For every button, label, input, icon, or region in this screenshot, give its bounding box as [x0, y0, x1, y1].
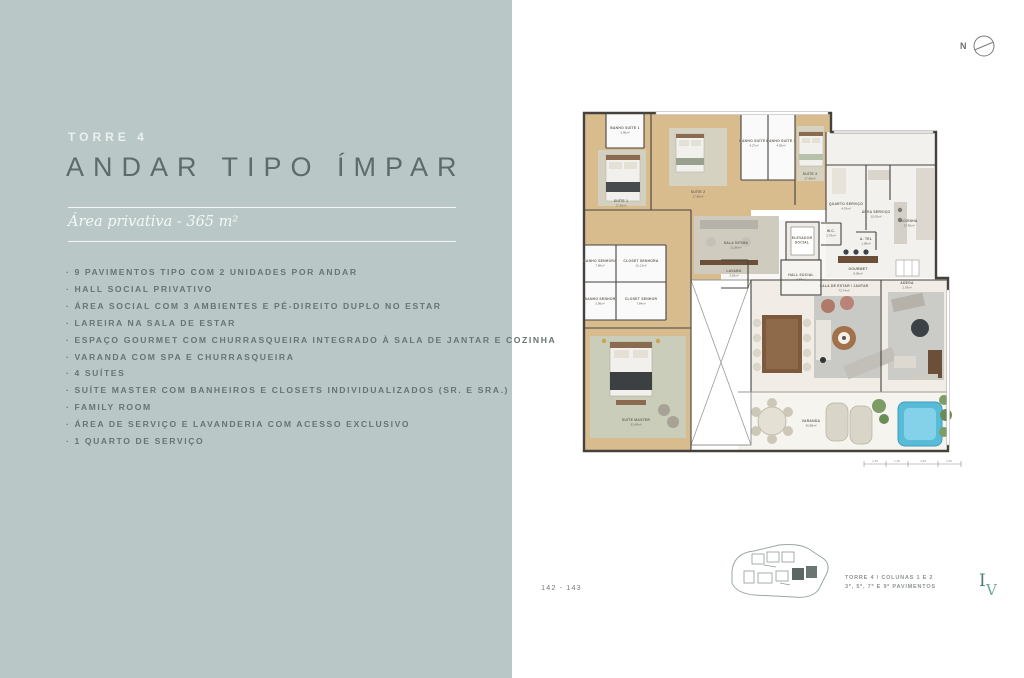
- floor-plan: SUÍTE 1 17,56m² BANHO SUÍTE 1 3,96m² SUÍ…: [576, 110, 968, 472]
- room-area: 1,58m²: [861, 242, 870, 246]
- page-title: ANDAR TIPO ÍMPAR: [66, 152, 466, 183]
- brochure-page: TORRE 4 ANDAR TIPO ÍMPAR Área privativa …: [0, 0, 1024, 678]
- scale-bar: 1,45 1,45 4,45 3,45: [864, 459, 961, 467]
- divider-line: [68, 207, 456, 208]
- room-label: HALL SOCIAL: [788, 273, 813, 277]
- feature-item: LAREIRA NA SALA DE ESTAR: [66, 315, 556, 332]
- feature-item: 9 PAVIMENTOS TIPO COM 2 UNIDADES POR AND…: [66, 264, 556, 281]
- room-area: 4,28m²: [776, 144, 785, 148]
- room-label: QUARTO SERVIÇO: [829, 202, 863, 206]
- private-area-label: Área privativa - 365 m²: [68, 214, 238, 230]
- feature-item: 1 QUARTO DE SERVIÇO: [66, 433, 556, 450]
- feature-item: ÁREA SOCIAL COM 3 AMBIENTES E PÉ-DIREITO…: [66, 298, 556, 315]
- room-label: SALA DE ESTAR / JANTAR: [820, 284, 869, 288]
- room-label: ELEVADOR: [792, 236, 813, 240]
- keyplan-caption-line1: TORRE 4 / COLUNAS 1 E 2: [845, 574, 936, 583]
- keyplan-caption: TORRE 4 / COLUNAS 1 E 2 3º, 5º, 7º E 9º …: [845, 574, 936, 592]
- room-label: SUÍTE MASTER: [622, 417, 651, 422]
- double-height-void: [691, 280, 751, 445]
- scale-value: 1,45: [872, 459, 878, 463]
- monogram-letter-v: V: [986, 581, 997, 599]
- room-label: A. TEL: [860, 237, 872, 241]
- room-label: BANHO SENHORA: [583, 259, 617, 263]
- room-label: SALA ÍNTIMA: [724, 240, 749, 245]
- room-area: 17,88m²: [804, 177, 815, 181]
- elevator-shafts: [781, 222, 821, 295]
- feature-item: VARANDA COM SPA E CHURRASQUEIRA: [66, 349, 556, 366]
- room-area: 7,86m²: [595, 264, 604, 268]
- room-label: ÁREA SERVIÇO: [862, 209, 891, 214]
- room-label: GOURMET: [848, 267, 868, 271]
- north-label: N: [960, 41, 968, 51]
- room-area: 3,55m²: [729, 274, 738, 278]
- north-compass: N: [960, 33, 997, 59]
- scale-value: 3,45: [946, 459, 952, 463]
- room-area: 3,96m²: [620, 131, 629, 135]
- room-area: 17,56m²: [615, 204, 626, 208]
- room-label: SUÍTE 1: [614, 198, 629, 203]
- room-label: CLOSET SENHORA: [623, 259, 658, 263]
- room-area: 4,27m²: [749, 144, 758, 148]
- room-area: 17,36m²: [903, 224, 914, 228]
- page-number: 142 - 143: [541, 583, 582, 592]
- room-area: 10,13m²: [635, 264, 646, 268]
- feature-item: HALL SOCIAL PRIVATIVO: [66, 281, 556, 298]
- room-label: BANHO SUÍTE 3: [766, 138, 795, 143]
- feature-item: SUÍTE MASTER COM BANHEIROS E CLOSETS IND…: [66, 382, 556, 399]
- room-label: VARANDA: [802, 419, 821, 423]
- room-area: 6,88m²: [796, 278, 805, 282]
- monogram-letter-i: I: [979, 571, 986, 591]
- feature-list: 9 PAVIMENTOS TIPO COM 2 UNIDADES POR AND…: [66, 264, 556, 450]
- keyplan-caption-line2: 3º, 5º, 7º E 9º PAVIMENTOS: [845, 583, 936, 592]
- feature-item: 4 SUÍTES: [66, 365, 556, 382]
- divider-line: [68, 241, 456, 242]
- room-label: BANHO SENHOR: [585, 297, 616, 301]
- feature-item: ÁREA DE SERVIÇO E LAVANDERIA COM ACESSO …: [66, 416, 556, 433]
- tower-label: TORRE 4: [68, 130, 148, 144]
- feature-item: ESPAÇO GOURMET COM CHURRASQUEIRA INTEGRA…: [66, 332, 556, 349]
- room-area: 36,88m²: [805, 424, 816, 428]
- room-label: W.C.: [827, 229, 835, 233]
- room-area: 17,88m²: [692, 195, 703, 199]
- room-label: SUÍTE 2: [691, 189, 706, 194]
- brand-monogram: I V: [977, 571, 1007, 611]
- room-label: ADEGA: [900, 281, 914, 285]
- room-area: 21,86m²: [730, 246, 741, 250]
- room-label: COZINHA: [900, 219, 917, 223]
- room-label: CLOSET SENHOR: [625, 297, 658, 301]
- room-area: 31,48m²: [630, 423, 641, 427]
- site-keyplan: [724, 541, 836, 608]
- room-area: 8,06m²: [853, 272, 862, 276]
- scale-value: 1,45: [894, 459, 900, 463]
- room-area: 7,84m²: [636, 302, 645, 306]
- room-area: 2,78m²: [902, 286, 911, 290]
- compass-icon: [971, 33, 997, 59]
- room-label: SUÍTE 3: [803, 171, 818, 176]
- room-area: 2,79m²: [826, 234, 835, 238]
- info-panel: TORRE 4 ANDAR TIPO ÍMPAR Área privativa …: [0, 0, 512, 678]
- room-label: BANHO SUÍTE 2: [739, 138, 768, 143]
- room-area: 73,74m²: [838, 289, 849, 293]
- scale-value: 4,45: [920, 459, 926, 463]
- feature-item: FAMILY ROOM: [66, 399, 556, 416]
- room-label: LAVABO: [726, 269, 741, 273]
- room-label: SOCIAL: [795, 241, 809, 245]
- room-area: 4,76m²: [841, 207, 850, 211]
- room-area: 10,05m²: [870, 215, 881, 219]
- room-area: 5,86m²: [595, 302, 604, 306]
- room-label: BANHO SUÍTE 1: [610, 125, 639, 130]
